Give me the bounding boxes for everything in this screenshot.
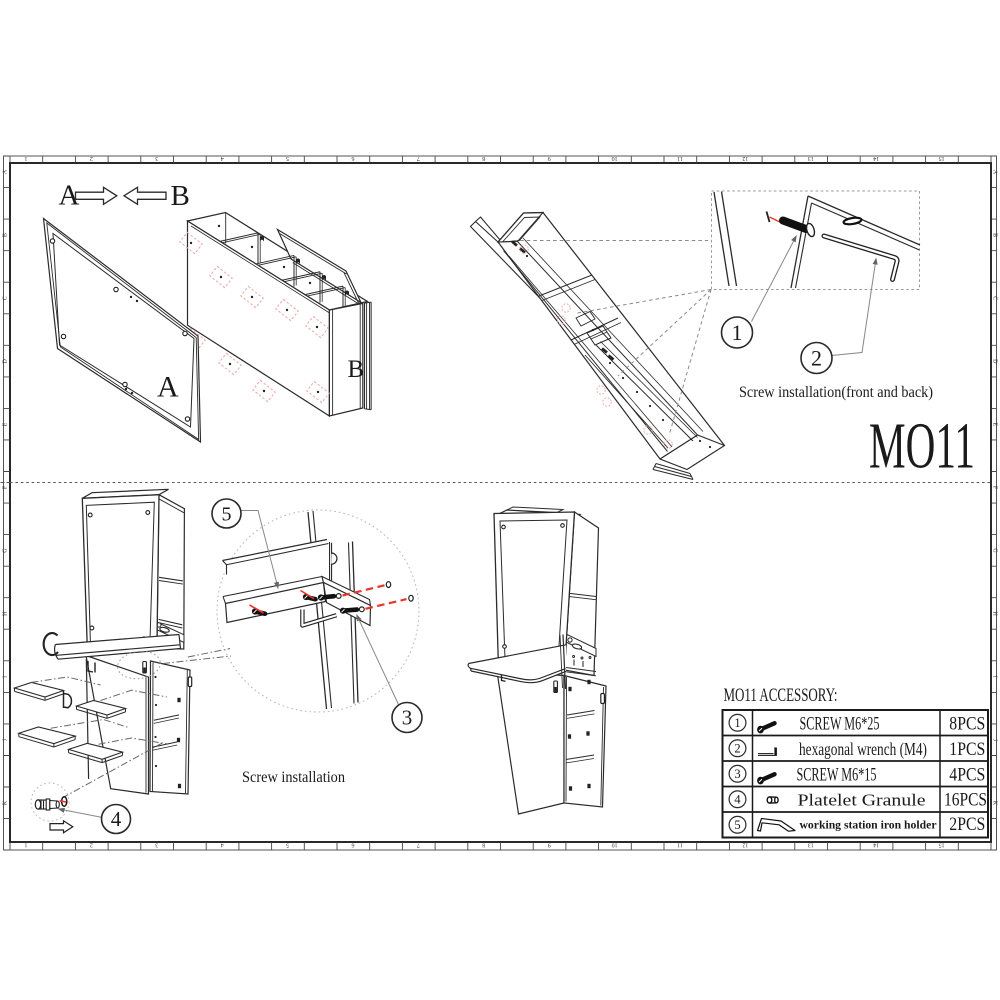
svg-text:E: E [3,422,9,426]
svg-text:8: 8 [482,155,485,161]
svg-text:14: 14 [873,155,879,161]
svg-text:C: C [992,296,998,300]
svg-text:I: I [3,676,9,678]
svg-text:G: G [992,548,998,553]
svg-text:5: 5 [734,818,740,832]
svg-text:14: 14 [873,842,879,848]
svg-text:13: 13 [808,155,814,161]
svg-text:I: I [992,676,998,678]
svg-text:2: 2 [734,742,740,756]
svg-text:H: H [992,612,998,617]
svg-text:4: 4 [734,793,741,807]
svg-text:4PCS: 4PCS [949,765,985,786]
svg-text:2: 2 [90,155,93,161]
svg-text:Screw installation(front and b: Screw installation(front and back) [739,384,933,401]
svg-text:B: B [348,356,365,383]
svg-text:K: K [3,800,9,805]
svg-text:10: 10 [612,155,618,161]
svg-text:H: H [3,611,9,616]
svg-text:2PCS: 2PCS [949,814,985,835]
svg-text:4: 4 [221,842,224,848]
svg-text:5: 5 [286,842,289,848]
svg-text:5: 5 [286,155,289,161]
svg-text:A: A [992,170,998,175]
svg-text:4: 4 [111,807,122,831]
svg-text:A: A [157,371,179,404]
svg-text:working station iron holder: working station iron holder [800,820,937,832]
svg-text:1: 1 [25,155,28,161]
svg-text:E: E [992,423,998,427]
svg-text:3: 3 [155,842,158,848]
svg-text:3: 3 [402,706,413,730]
svg-text:10: 10 [612,842,618,848]
svg-text:11: 11 [677,155,683,161]
svg-text:6: 6 [352,842,355,848]
svg-text:MO11: MO11 [869,410,975,483]
svg-text:2: 2 [811,345,822,370]
svg-text:B: B [3,233,9,237]
svg-text:1: 1 [732,320,743,345]
svg-text:12: 12 [742,155,748,161]
svg-text:3: 3 [155,155,158,161]
svg-text:3: 3 [734,767,740,781]
svg-text:16PCS: 16PCS [944,790,987,811]
svg-text:11: 11 [677,842,683,848]
svg-text:6: 6 [352,155,355,161]
svg-text:15: 15 [939,155,945,161]
svg-text:8: 8 [482,842,485,848]
svg-text:8PCS: 8PCS [949,714,985,735]
svg-text:D: D [3,358,9,363]
svg-text:1: 1 [734,716,740,730]
svg-text:15: 15 [939,842,945,848]
svg-text:13: 13 [808,842,814,848]
svg-text:SCREW M6*25: SCREW M6*25 [800,715,880,735]
svg-text:D: D [992,359,998,364]
svg-text:SCREW M6*15: SCREW M6*15 [797,766,877,786]
svg-text:Screw installation: Screw installation [242,769,345,786]
svg-text:12: 12 [742,842,748,848]
svg-text:1PCS: 1PCS [949,739,985,760]
svg-text:A: A [3,169,9,174]
svg-text:9: 9 [548,842,551,848]
svg-text:B: B [992,233,998,237]
svg-text:4: 4 [221,155,224,161]
svg-text:hexagonal wrench (M4): hexagonal wrench (M4) [799,739,927,759]
svg-text:MO11 ACCESSORY:: MO11 ACCESSORY: [724,685,838,706]
svg-text:1: 1 [25,842,28,848]
svg-text:G: G [3,548,9,553]
svg-text:2: 2 [90,842,93,848]
svg-text:7: 7 [417,842,420,848]
svg-text:7: 7 [417,155,420,161]
svg-text:C: C [3,296,9,300]
svg-text:Platelet Granule: Platelet Granule [798,791,926,810]
svg-text:5: 5 [222,503,232,525]
svg-text:B: B [171,180,190,212]
svg-text:K: K [992,801,998,806]
svg-text:9: 9 [548,155,551,161]
